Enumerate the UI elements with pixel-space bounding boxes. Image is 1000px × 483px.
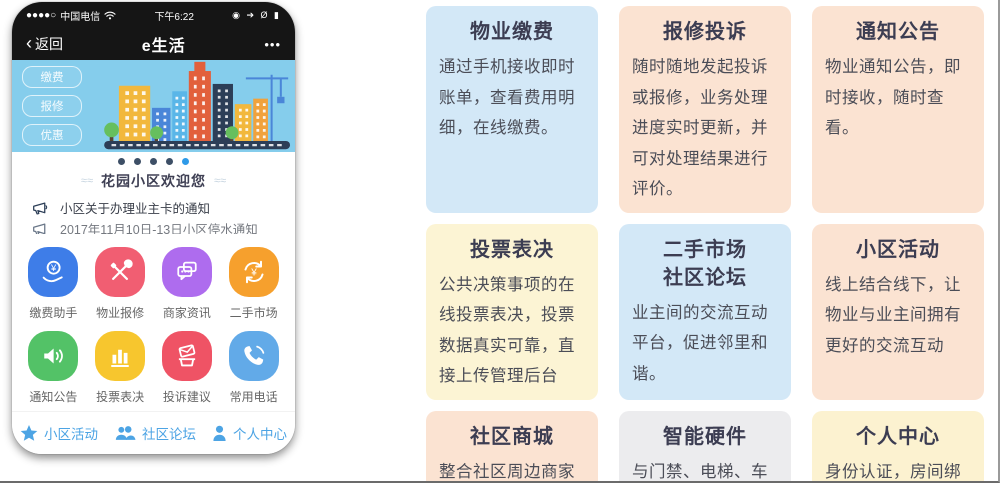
card-community-mall: 社区商城 整合社区周边商家资源于线上，便利业主生活，增加物业公司其他收益 <box>426 411 598 483</box>
card-title: 通知公告 <box>825 18 971 46</box>
card-title: 物业缴费 <box>439 18 585 46</box>
person-icon <box>212 425 227 441</box>
card-community-activity: 小区活动 线上结合线下，让物业与业主间拥有更好的交流互动 <box>812 224 984 400</box>
bottom-tab-bar: 小区活动 社区论坛 个人中心 <box>12 412 295 454</box>
svg-text:¥: ¥ <box>50 263 57 273</box>
app-grid: ¥ 缴费助手 物业报修 <box>12 239 295 405</box>
welcome-text: 花园小区欢迎您 <box>101 171 206 191</box>
back-label: 返回 <box>35 34 63 54</box>
app-label: 二手市场 <box>230 304 278 321</box>
banner-quick-buttons: 缴费 报修 优惠 <box>22 66 82 152</box>
svg-text:¥: ¥ <box>250 267 257 278</box>
signal-dots-icon: ●●●●○ <box>26 10 56 21</box>
vote-bars-icon <box>95 331 145 381</box>
carrier-label: 中国电信 <box>60 8 100 23</box>
status-right-icons: ◉ ➔ Ø ▮ <box>232 10 281 21</box>
app-label: 投票表决 <box>96 388 144 405</box>
app-item-phone-numbers[interactable]: 常用电话 <box>220 331 287 405</box>
hero-banner: 缴费 报修 优惠 <box>12 60 295 152</box>
app-label: 投诉建议 <box>163 388 211 405</box>
card-title: 报修投诉 <box>632 18 778 46</box>
second-hand-icon: ¥ <box>229 247 279 297</box>
welcome-deco-left: ≈≈ <box>81 175 93 187</box>
card-title: 二手市场 <box>632 236 778 264</box>
card-body: 通过手机接收即时账单，查看费用明细，在线缴费。 <box>439 52 585 144</box>
app-item-complaint[interactable]: 投诉建议 <box>154 331 221 405</box>
page-title: e生活 <box>142 32 186 56</box>
pay-assistant-icon: ¥ <box>28 247 78 297</box>
app-label: 缴费助手 <box>29 304 77 321</box>
card-body: 随时随地发起投诉或报修，业务处理进度实时更新，并可对处理结果进行评价。 <box>632 52 778 205</box>
app-item-pay-assistant[interactable]: ¥ 缴费助手 <box>20 247 87 321</box>
wifi-icon <box>104 10 116 20</box>
card-smart-hardware: 智能硬件 与门禁、电梯、车辆识别等系统进行联动。 <box>619 411 791 483</box>
notice-list: 小区关于办理业主卡的通知 2017年11月10日-13日小区停水通知 <box>12 191 295 234</box>
tab-community-activity[interactable]: 小区活动 <box>20 423 98 443</box>
notice-item[interactable]: 小区关于办理业主卡的通知 <box>32 198 275 217</box>
card-body: 线上结合线下，让物业与业主间拥有更好的交流互动 <box>825 270 971 362</box>
megaphone-icon <box>32 222 49 234</box>
city-illustration <box>90 60 295 152</box>
notice-text: 2017年11月10日-13日小区停水通知 <box>60 222 258 234</box>
card-title: 投票表决 <box>439 236 585 264</box>
feature-cards-grid: 物业缴费 通过手机接收即时账单，查看费用明细，在线缴费。 报修投诉 随时随地发起… <box>426 6 984 483</box>
carousel-dots <box>12 152 295 168</box>
app-item-second-hand[interactable]: ¥ 二手市场 <box>220 247 287 321</box>
back-chevron-icon: ‹ <box>26 34 32 52</box>
app-label: 物业报修 <box>96 304 144 321</box>
card-title: 个人中心 <box>825 423 971 451</box>
card-title: 小区活动 <box>825 236 971 264</box>
card-property-payment: 物业缴费 通过手机接收即时账单，查看费用明细，在线缴费。 <box>426 6 598 213</box>
nav-bar: ‹ 返回 e生活 ••• <box>12 28 295 60</box>
complaint-box-icon <box>162 331 212 381</box>
megaphone-icon <box>32 200 49 215</box>
tab-label: 社区论坛 <box>142 423 196 443</box>
app-item-vote[interactable]: 投票表决 <box>87 331 154 405</box>
notice-speaker-icon <box>28 331 78 381</box>
app-item-merchant-news[interactable]: 商家资讯 <box>154 247 221 321</box>
card-title: 社区商城 <box>439 423 585 451</box>
app-item-notice[interactable]: 通知公告 <box>20 331 87 405</box>
card-body: 物业通知公告，即时接收，随时查看。 <box>825 52 971 144</box>
notice-item-clipped[interactable]: 2017年11月10日-13日小区停水通知 <box>32 222 275 234</box>
card-body: 公共决策事项的在线投票表决，投票数据真实可靠，直接上传管理后台 <box>439 270 585 392</box>
status-time: 下午6:22 <box>154 8 193 23</box>
card-repair-complaint: 报修投诉 随时随地发起投诉或报修，业务处理进度实时更新，并可对处理结果进行评价。 <box>619 6 791 213</box>
carousel-dot-5-active[interactable] <box>182 158 189 165</box>
back-button[interactable]: ‹ 返回 <box>26 34 63 54</box>
star-icon <box>20 425 38 442</box>
app-label: 常用电话 <box>230 388 278 405</box>
quick-button-discount[interactable]: 优惠 <box>22 124 82 146</box>
app-label: 通知公告 <box>29 388 77 405</box>
card-title: 智能硬件 <box>632 423 778 451</box>
welcome-deco-right: ≈≈ <box>214 175 226 187</box>
card-second-hand-forum: 二手市场 社区论坛 业主间的交流互动平台，促进邻里和谐。 <box>619 224 791 400</box>
card-voting: 投票表决 公共决策事项的在线投票表决，投票数据真实可靠，直接上传管理后台 <box>426 224 598 400</box>
card-notice-announcement: 通知公告 物业通知公告，即时接收，随时查看。 <box>812 6 984 213</box>
card-body: 身份认证，房间绑定，账户充值 <box>825 457 971 483</box>
notice-text: 小区关于办理业主卡的通知 <box>60 198 210 217</box>
app-item-repair[interactable]: 物业报修 <box>87 247 154 321</box>
status-bar: ●●●●○ 中国电信 下午6:22 ◉ ➔ Ø ▮ <box>12 2 295 28</box>
carousel-dot-1[interactable] <box>118 158 125 165</box>
tab-community-forum[interactable]: 社区论坛 <box>114 423 196 443</box>
carousel-dot-3[interactable] <box>150 158 157 165</box>
quick-button-pay[interactable]: 缴费 <box>22 66 82 88</box>
carousel-dot-2[interactable] <box>134 158 141 165</box>
welcome-banner: ≈≈ 花园小区欢迎您 ≈≈ <box>12 171 295 191</box>
quick-button-repair[interactable]: 报修 <box>22 95 82 117</box>
repair-tools-icon <box>95 247 145 297</box>
phone-handset-icon <box>229 331 279 381</box>
more-menu-icon[interactable]: ••• <box>264 37 281 52</box>
people-icon <box>114 425 136 441</box>
tab-label: 个人中心 <box>233 423 287 443</box>
app-label: 商家资讯 <box>163 304 211 321</box>
tab-label: 小区活动 <box>44 423 98 443</box>
card-personal-center: 个人中心 身份认证，房间绑定，账户充值 <box>812 411 984 483</box>
card-body: 业主间的交流互动平台，促进邻里和谐。 <box>632 298 778 390</box>
tab-personal-center[interactable]: 个人中心 <box>212 423 287 443</box>
screenshot-root: ●●●●○ 中国电信 下午6:22 ◉ ➔ Ø ▮ ‹ 返回 e生活 ••• 缴… <box>0 0 1000 483</box>
phone-mockup: ●●●●○ 中国电信 下午6:22 ◉ ➔ Ø ▮ ‹ 返回 e生活 ••• 缴… <box>12 2 295 454</box>
card-body: 与门禁、电梯、车辆识别等系统进行联动。 <box>632 457 778 483</box>
card-body: 整合社区周边商家资源于线上，便利业主生活，增加物业公司其他收益 <box>439 457 585 483</box>
carousel-dot-4[interactable] <box>166 158 173 165</box>
merchant-news-icon <box>162 247 212 297</box>
card-title-line2: 社区论坛 <box>632 264 778 292</box>
